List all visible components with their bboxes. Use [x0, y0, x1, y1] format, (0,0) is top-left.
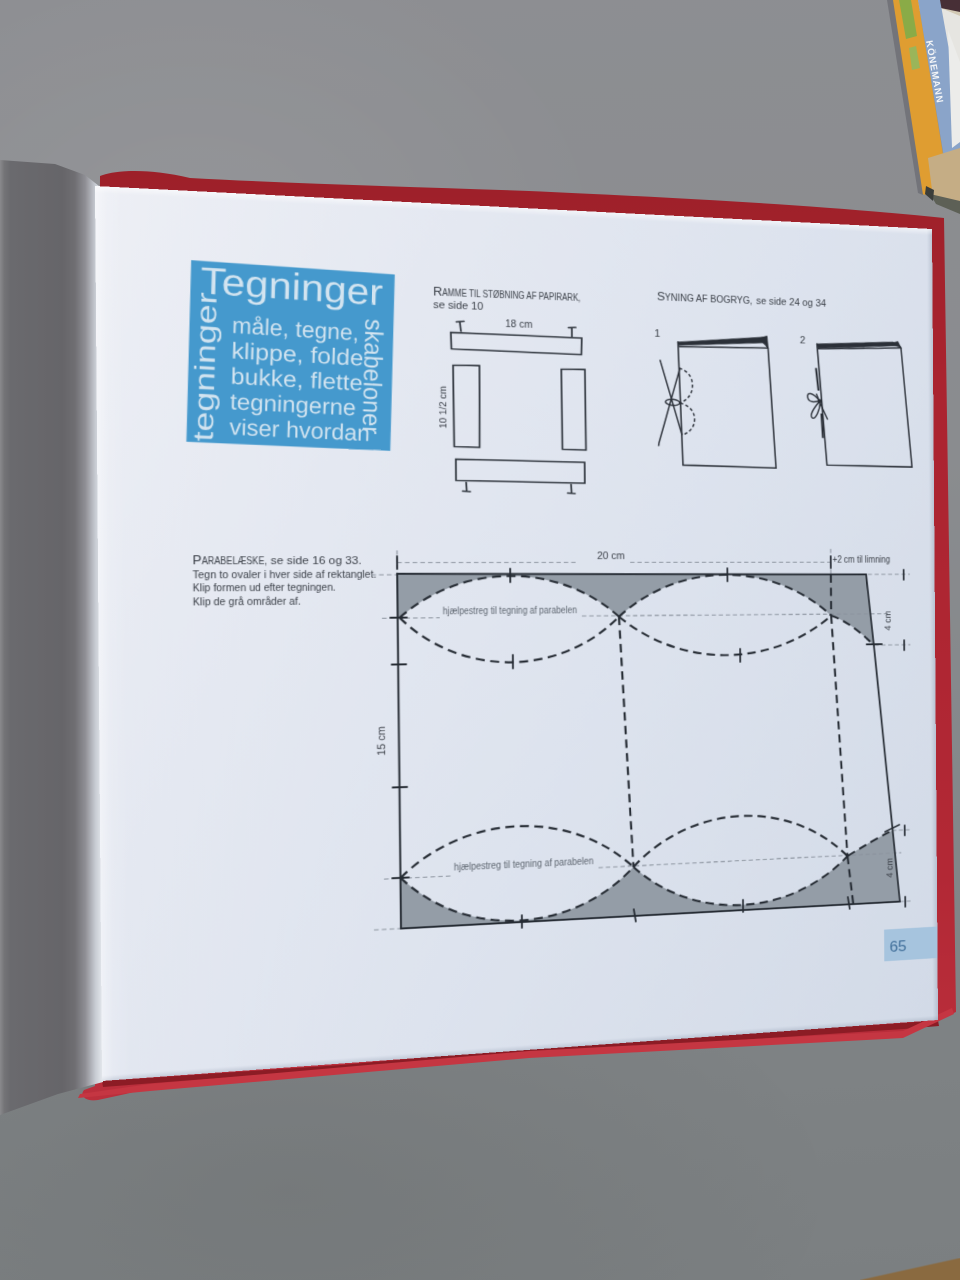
- svg-text:4 cm: 4 cm: [885, 858, 895, 878]
- svg-text:2: 2: [800, 334, 806, 346]
- svg-text:10 1/2 cm: 10 1/2 cm: [438, 386, 450, 429]
- svg-text:4 cm: 4 cm: [883, 611, 893, 631]
- svg-text:se side 24 og 34: se side 24 og 34: [756, 295, 826, 310]
- svg-text:Klip formen ud efter tegningen: Klip formen ud efter tegningen.: [193, 583, 336, 595]
- svg-text:se side 10: se side 10: [433, 299, 484, 312]
- svg-text:18 cm: 18 cm: [505, 319, 532, 331]
- svg-text:ARABELÆSKE,: ARABELÆSKE,: [202, 556, 267, 567]
- svg-text:hjælpestreg til tegning af par: hjælpestreg til tegning af parabelen: [454, 856, 594, 873]
- svg-text:15 cm: 15 cm: [374, 726, 388, 756]
- svg-text:20 cm: 20 cm: [597, 551, 625, 561]
- svg-text:Tegn to ovaler i hver side af: Tegn to ovaler i hver side af rektanglet…: [193, 570, 377, 581]
- svg-text:P: P: [192, 553, 201, 567]
- svg-text:65: 65: [889, 937, 906, 956]
- svg-text:YNING AF BOGRYG,: YNING AF BOGRYG,: [665, 293, 753, 307]
- svg-text:+2 cm til limning: +2 cm til limning: [833, 555, 891, 565]
- svg-text:R: R: [433, 285, 443, 299]
- svg-text:Klip de grå områder af.: Klip de grå områder af.: [193, 596, 301, 608]
- svg-text:se side 16 og 33.: se side 16 og 33.: [271, 556, 362, 567]
- svg-text:1: 1: [654, 327, 660, 339]
- svg-text:hjælpestreg til tegning af par: hjælpestreg til tegning af parabelen: [443, 605, 577, 617]
